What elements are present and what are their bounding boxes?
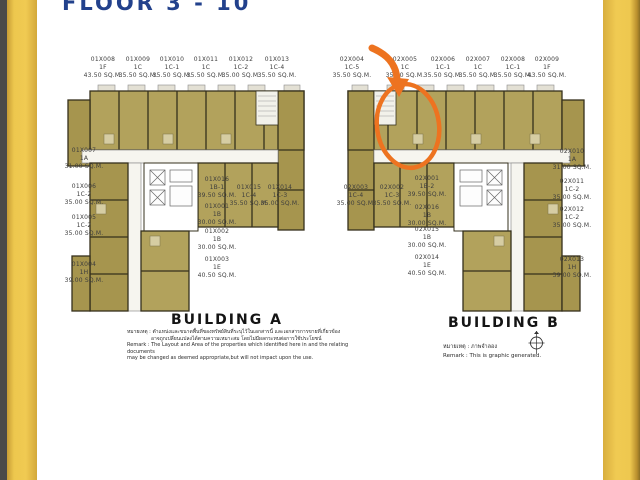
corridor [374, 150, 570, 163]
page-title: FLOOR 3 - 10 [62, 0, 251, 14]
building-a-remark: หมายเหตุ : ตำแหน่งและขนาดพื้นที่ของทรัพย… [127, 329, 377, 362]
unit-label-02X012: 02X0121C-235.00 SQ.M. [546, 206, 598, 230]
left-gold-border [0, 0, 37, 480]
unit-label-01X013: 01X0131C-435.50 SQ.M. [251, 56, 303, 80]
building-a-title: BUILDING A [171, 312, 283, 328]
unit-label-02X013: 02X0131H39.00 SQ.M. [546, 256, 598, 280]
unit-label-02X015: 02X0151B30.00 SQ.M. [401, 226, 453, 250]
unit-label-01X006: 01X0061C-235.00 SQ.M. [58, 183, 110, 207]
unit-label-02X009: 02X0091F43.50 SQ.M. [521, 56, 573, 80]
corridor [128, 163, 141, 311]
corridor [511, 163, 524, 311]
balcony-strip [352, 85, 554, 91]
unit-label-01X005: 01X0051C-235.00 SQ.M. [58, 214, 110, 238]
unit-label-02X001: 02X0011B-239.50 SQ.M. [401, 175, 453, 199]
right-gold-border [603, 0, 640, 480]
unit-label-01X003: 01X0031E40.50 SQ.M. [191, 256, 243, 280]
building-b-remark: หมายเหตุ : ภาพจำลองRemark : This is grap… [443, 343, 593, 361]
balcony-strip [98, 85, 300, 91]
floor-plan-page: FLOOR 3 - 10 [0, 0, 640, 480]
unit-label-01X004: 01X0041H39.00 SQ.M. [58, 261, 110, 285]
building-b-title: BUILDING B [448, 315, 560, 331]
unit-label-01X001: 01X0011B30.00 SQ.M. [191, 203, 243, 227]
unit-label-01X014: 01X0141C-335.00 SQ.M. [254, 184, 306, 208]
unit-label-02X011: 02X0111C-235.00 SQ.M. [546, 178, 598, 202]
unit-label-01X002: 01X0021B30.00 SQ.M. [191, 228, 243, 252]
unit-label-01X007: 01X0071A31.00 SQ.M. [58, 147, 110, 171]
unit-label-02X004: 02X0041C-535.50 SQ.M. [326, 56, 378, 80]
unit-label-02X014: 02X0141E40.50 SQ.M. [401, 254, 453, 278]
unit-label-02X010: 02X0101A31.00 SQ.M. [546, 148, 598, 172]
unit-label-02X016: 02X0161B30.00 SQ.M. [401, 204, 453, 228]
corridor [82, 150, 278, 163]
